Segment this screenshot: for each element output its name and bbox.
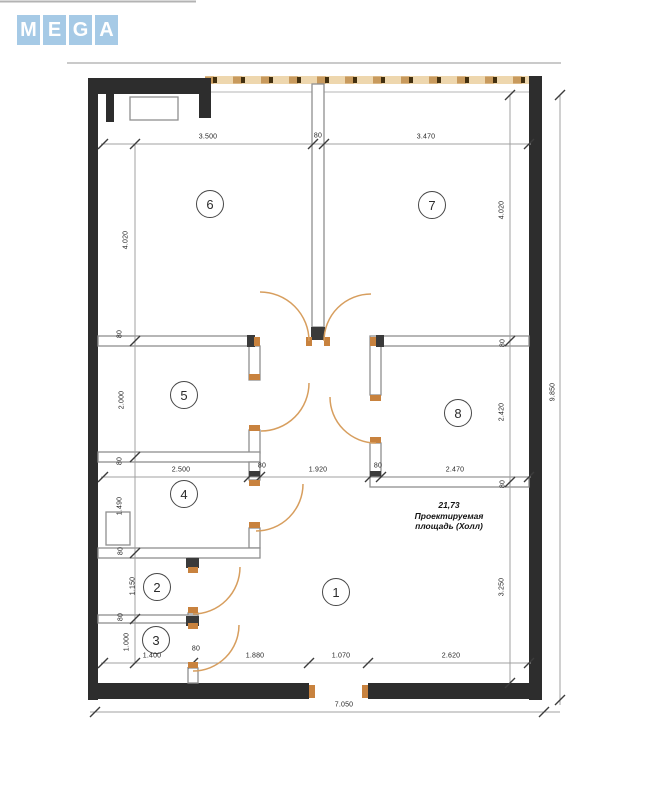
door-arc-room2 <box>193 567 240 614</box>
mega-logo[interactable]: MEGA <box>17 15 118 45</box>
floorplan-page: MEGA 12345678 3.500803.4704.020802.00080… <box>0 0 661 800</box>
floorplan-drawing <box>0 0 661 800</box>
dimension-label: 3.470 <box>417 134 436 141</box>
dimension-label: 1.070 <box>332 653 351 660</box>
dimension-label: 2.500 <box>172 467 191 474</box>
dimension-label: 1.880 <box>246 653 265 660</box>
room-number-badge: 5 <box>170 381 198 409</box>
room-number-badge: 2 <box>143 573 171 601</box>
logo-letter-tile: M <box>17 15 40 45</box>
room-number-badge: 3 <box>142 626 170 654</box>
dimension-label: 80 <box>117 330 124 338</box>
dashed-opening-line <box>205 76 531 84</box>
room-number-badge: 7 <box>418 191 446 219</box>
annotation-text-line3: площадь (Холл) <box>415 521 484 532</box>
annotation-text-line2: Проектируемая <box>415 511 484 522</box>
dimension-label: 80 <box>117 457 124 465</box>
dimension-label: 80 <box>374 463 382 470</box>
logo-letter-tile: A <box>95 15 118 45</box>
dimension-label: 80 <box>500 480 507 488</box>
area-annotation: 21,73 Проектируемая площадь (Холл) <box>415 500 484 532</box>
dimension-label: 9.850 <box>550 383 557 402</box>
dimension-label: 4.020 <box>499 201 506 220</box>
dimension-label: 4.020 <box>123 231 130 250</box>
dimension-label: 1.150 <box>130 577 137 596</box>
dimension-label: 2.000 <box>119 391 126 410</box>
room-number-badge: 6 <box>196 190 224 218</box>
door-arc-room5 <box>261 383 309 431</box>
door-arc-room4 <box>256 484 303 531</box>
dimension-label: 1.000 <box>124 633 131 652</box>
dimension-label: 80 <box>500 339 507 347</box>
door-arc-room7 <box>324 294 371 341</box>
dimension-label: 80 <box>314 133 322 140</box>
dimension-label: 2.470 <box>446 467 465 474</box>
dimension-label: 1.490 <box>117 497 124 516</box>
door-arcs <box>193 292 376 671</box>
room-number-badge: 4 <box>170 480 198 508</box>
logo-letter-tile: E <box>43 15 66 45</box>
room-number-badge: 1 <box>322 578 350 606</box>
dimension-label: 80 <box>118 547 125 555</box>
dimension-label: 80 <box>192 646 200 653</box>
dimension-label: 80 <box>118 613 125 621</box>
dimension-label: 2.620 <box>442 653 461 660</box>
dimension-label: 7.050 <box>335 702 354 709</box>
door-arc-room8 <box>330 397 376 443</box>
dimension-label: 2.420 <box>499 403 506 422</box>
annotation-area-value: 21,73 <box>415 500 484 511</box>
logo-letter-tile: G <box>69 15 92 45</box>
room-number-badge: 8 <box>444 399 472 427</box>
dimension-label: 1.920 <box>309 467 328 474</box>
dimension-label: 3.500 <box>199 134 218 141</box>
dimension-label: 1.400 <box>143 653 162 660</box>
dimension-label: 3.250 <box>499 578 506 597</box>
door-arc-room6 <box>260 292 309 341</box>
dimension-label: 80 <box>258 463 266 470</box>
door-jambs <box>188 337 381 698</box>
